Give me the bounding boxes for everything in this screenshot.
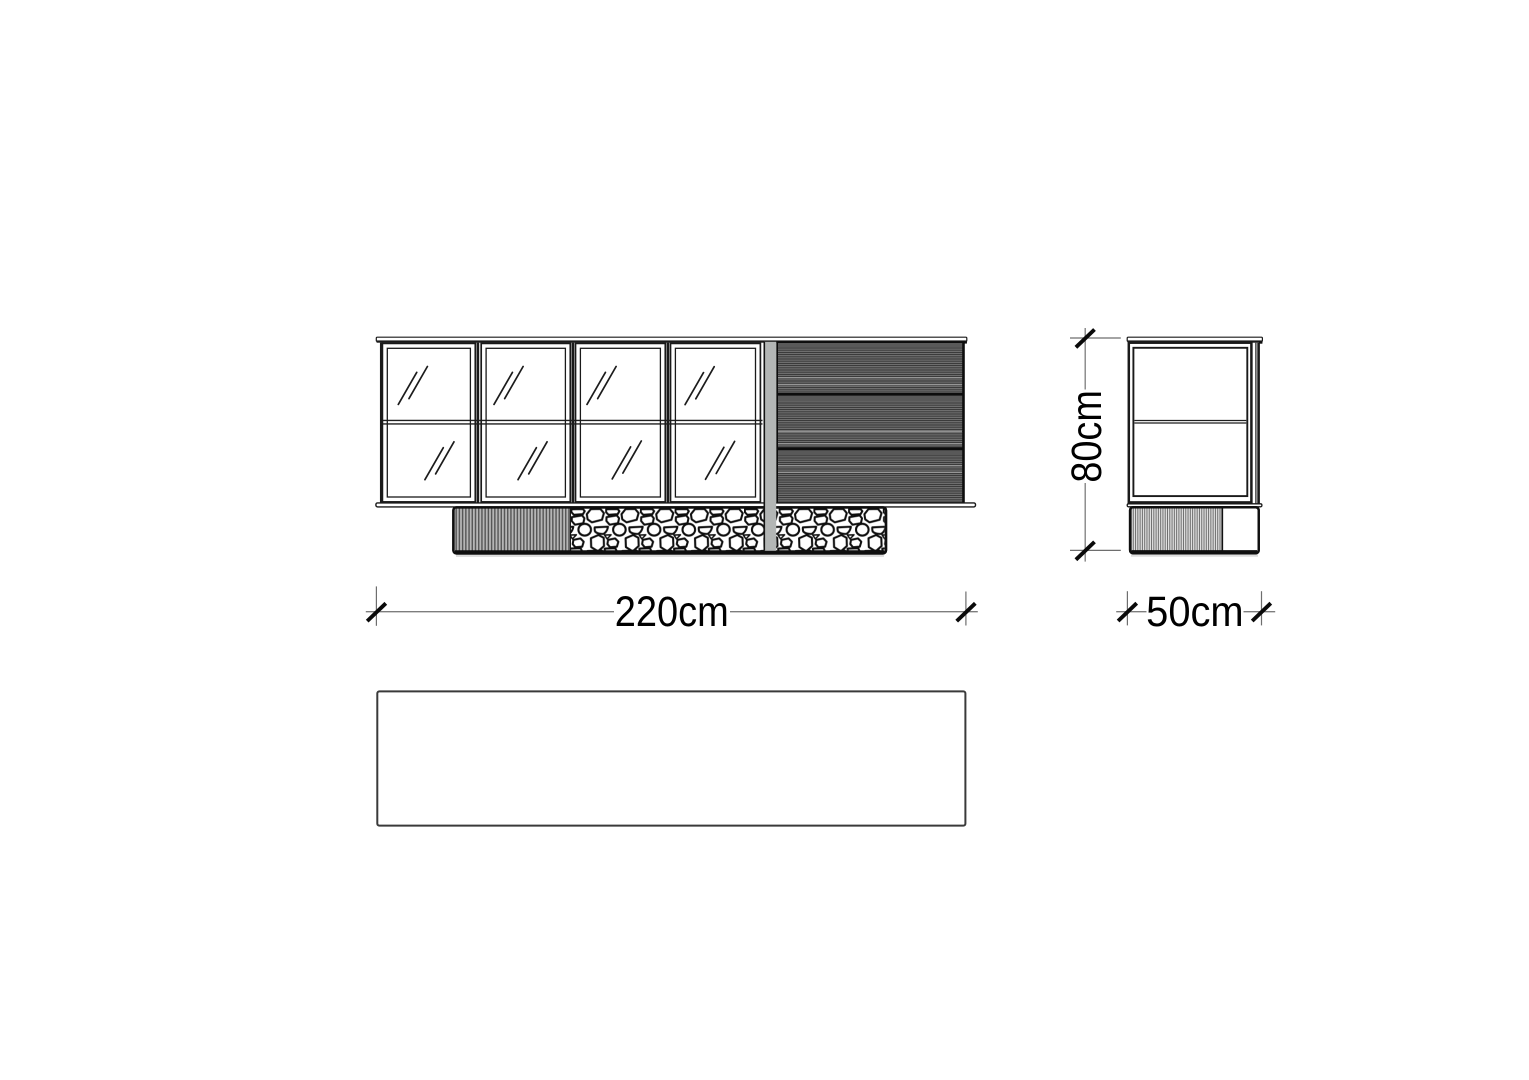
svg-text:220cm: 220cm xyxy=(615,588,729,636)
svg-text:50cm: 50cm xyxy=(1146,588,1244,636)
svg-text:80cm: 80cm xyxy=(1063,390,1111,483)
